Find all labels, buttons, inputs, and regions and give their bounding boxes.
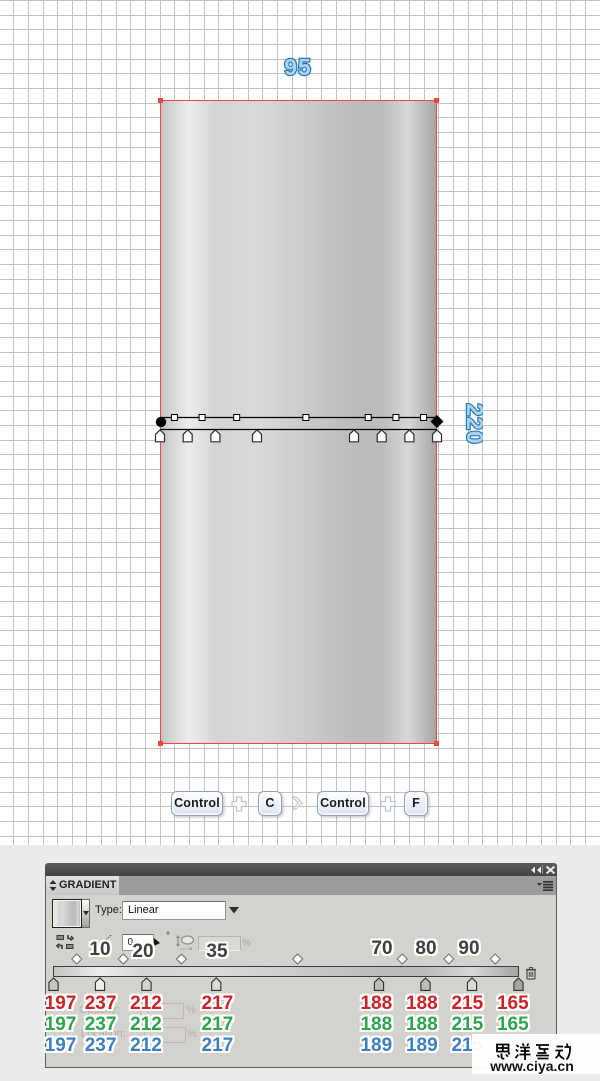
svg-text:95: 95 <box>284 54 312 80</box>
svg-text:220: 220 <box>462 403 483 444</box>
